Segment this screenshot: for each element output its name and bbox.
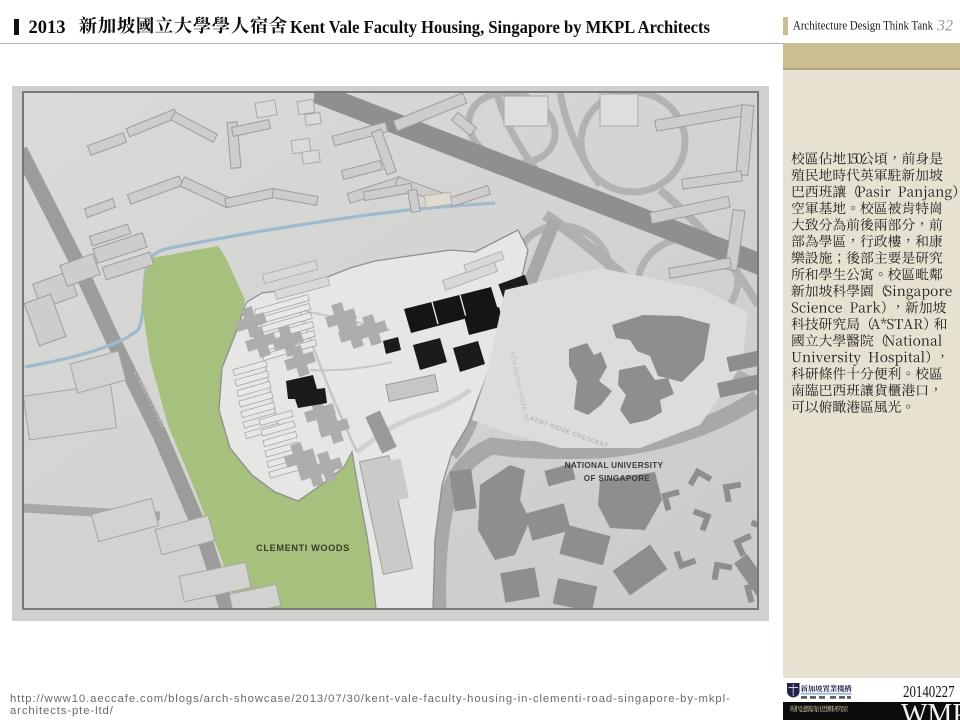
svg-text:Kent Vale Faculty Housing, Sin: Kent Vale Faculty Housing, Singapore by …	[290, 17, 710, 37]
svg-text:32: 32	[936, 18, 953, 35]
svg-text:2013: 2013	[29, 18, 66, 38]
svg-text:WMP: WMP	[901, 699, 960, 720]
svg-text:Architecture Design Think Tank: Architecture Design Think Tank	[793, 18, 933, 33]
